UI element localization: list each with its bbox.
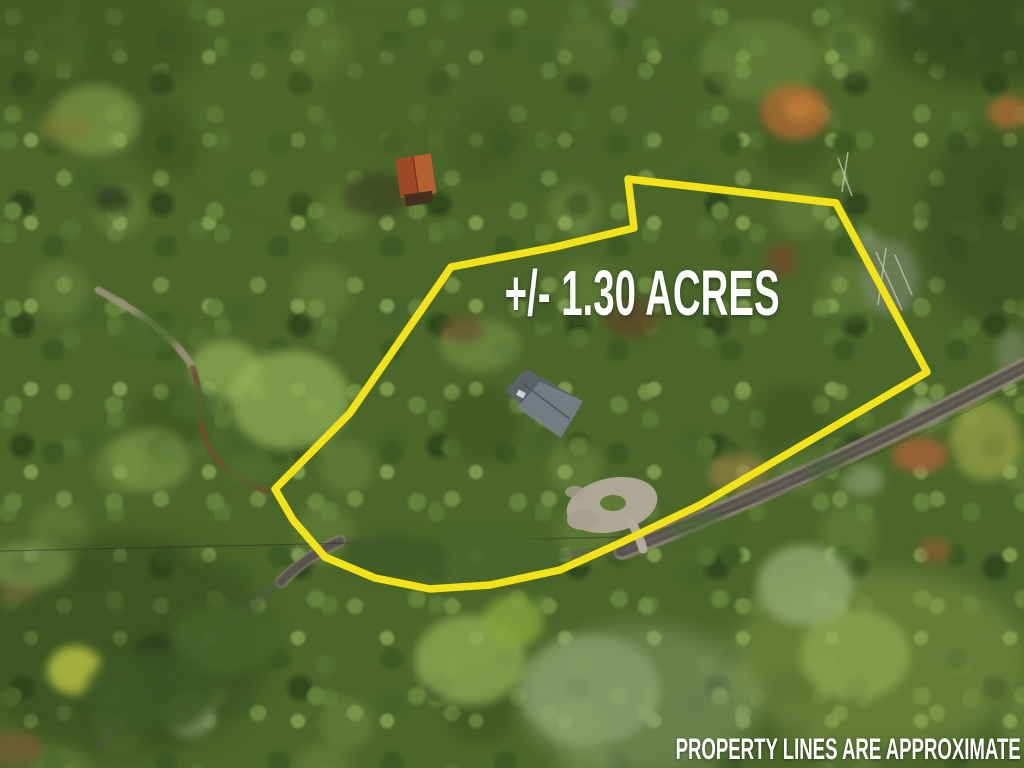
property-boundary (275, 179, 927, 589)
acreage-label-text: +/- 1.30 ACRES (505, 261, 780, 325)
acreage-label: +/- 1.30 ACRES (130, 261, 1024, 325)
aerial-photo: +/- 1.30 ACRES PROPERTY LINES ARE APPROX… (0, 0, 1024, 768)
disclaimer-label-text: PROPERTY LINES ARE APPROXIMATE (676, 735, 1021, 765)
annotation-layer (0, 0, 1024, 768)
disclaimer-label: PROPERTY LINES ARE APPROXIMATE (464, 735, 1021, 765)
